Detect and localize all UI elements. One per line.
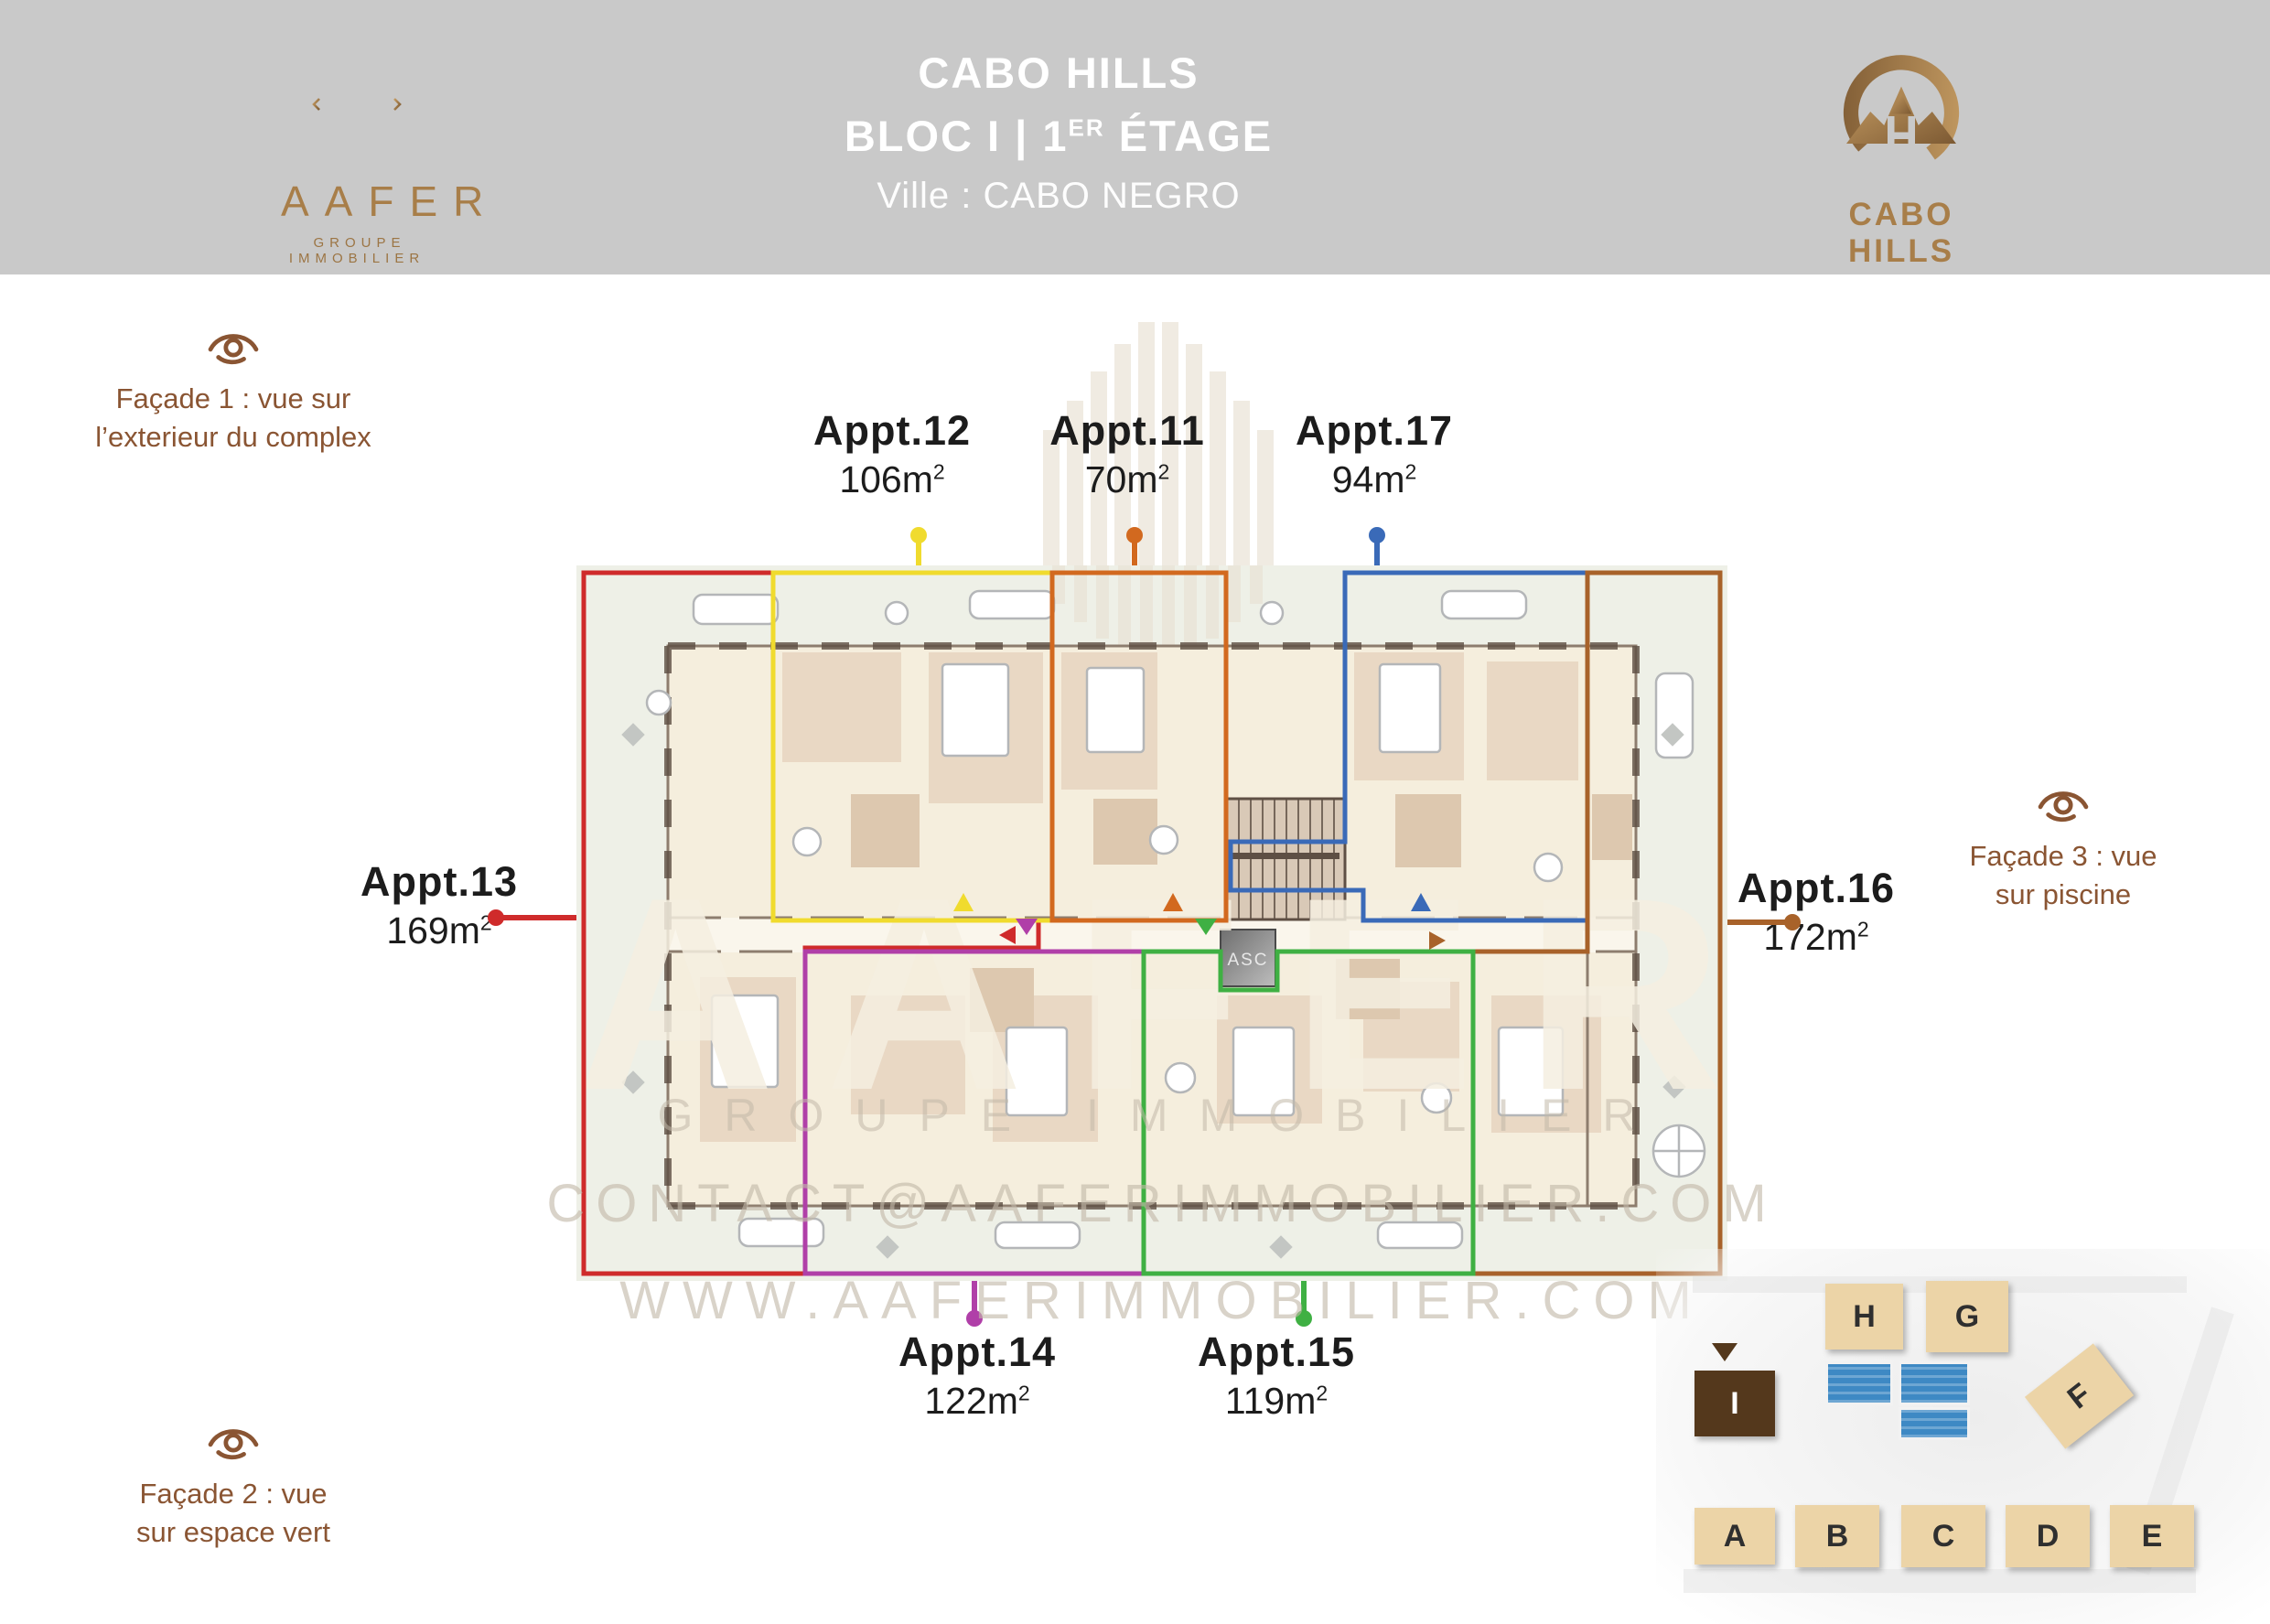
appt-14-name: Appt.14 <box>840 1328 1114 1376</box>
appt-11-arrow-icon <box>1163 893 1183 911</box>
site-block-i-marker-icon <box>1712 1343 1737 1361</box>
aafer-diamond-icon <box>307 46 407 163</box>
appt-17-pin-dot <box>1369 527 1385 543</box>
facade-2-note: Façade 2 : vue sur espace vert <box>69 1420 398 1552</box>
site-block-h: H <box>1825 1284 1903 1350</box>
cabo-hills-logo: CABO HILLS <box>1801 48 2002 270</box>
appt-12-name: Appt.12 <box>782 407 1002 455</box>
label-appt-13: Appt.13 169m2 <box>302 858 576 952</box>
appt-15-arrow-icon <box>1195 919 1217 935</box>
eye-icon <box>205 1420 262 1462</box>
city-subtitle: Ville : CABO NEGRO <box>784 176 1333 217</box>
appt-12-arrow-icon <box>953 893 974 911</box>
appt-13-arrow-icon <box>999 926 1016 944</box>
page: AAFER GROUPE IMMOBILIER CABO HILLS BLOC … <box>0 0 2270 1624</box>
appt-12-outline <box>773 573 1052 920</box>
site-road <box>1684 1569 2196 1593</box>
project-title: CABO HILLS <box>784 48 1333 98</box>
appt-16-pin <box>1726 920 1791 925</box>
appt-16-outline <box>1473 573 1720 1274</box>
appt-14-pin-dot <box>966 1310 983 1327</box>
facade-1-line2: l’exterieur du complex <box>69 418 398 457</box>
pool <box>1825 1361 1893 1405</box>
appt-13-pin-dot <box>488 909 504 926</box>
eye-icon <box>2035 782 2092 824</box>
appt-17-outline <box>1231 573 1587 920</box>
site-block-c: C <box>1901 1505 1985 1567</box>
appt-11-outline <box>1052 573 1226 920</box>
floor-plan: ASC AAFER <box>576 565 1727 1281</box>
cabo-hills-emblem-icon <box>1833 48 1970 185</box>
label-appt-14: Appt.14 122m2 <box>840 1328 1114 1423</box>
site-block-g: G <box>1926 1281 2008 1352</box>
appt-16-pin-dot <box>1784 914 1801 930</box>
page-title-block: CABO HILLS BLOC I | 1ER ÉTAGE Ville : CA… <box>784 48 1333 217</box>
site-key-map: H G F I A B C D E <box>1656 1249 2270 1624</box>
appt-12-pin-dot <box>910 527 927 543</box>
appt-12-area: 106m2 <box>782 458 1002 501</box>
appt-14-arrow-icon <box>1016 919 1038 935</box>
appt-15-name: Appt.15 <box>1139 1328 1414 1376</box>
site-block-e: E <box>2110 1505 2194 1567</box>
appt-15-outline <box>1144 952 1473 1274</box>
facade-2-line1: Façade 2 : vue <box>69 1475 398 1513</box>
appt-14-area: 122m2 <box>840 1380 1114 1423</box>
label-appt-11: Appt.11 70m2 <box>1017 407 1237 501</box>
aafer-logo-text: AAFER <box>265 177 448 226</box>
appt-17-area: 94m2 <box>1264 458 1484 501</box>
site-block-i-highlighted: I <box>1694 1371 1775 1436</box>
eye-icon <box>205 325 262 367</box>
facade-1-line1: Façade 1 : vue sur <box>69 380 398 418</box>
appt-11-area: 70m2 <box>1017 458 1237 501</box>
facade-2-line2: sur espace vert <box>69 1513 398 1552</box>
cabo-hills-logo-text: CABO HILLS <box>1801 197 2002 270</box>
appt-15-area: 119m2 <box>1139 1380 1414 1423</box>
facade-1-note: Façade 1 : vue sur l’exterieur du comple… <box>69 325 398 457</box>
bloc-floor-title: BLOC I | 1ER ÉTAGE <box>784 111 1333 161</box>
aafer-logo-tagline: GROUPE IMMOBILIER <box>265 235 448 266</box>
appt-11-name: Appt.11 <box>1017 407 1237 455</box>
site-block-d: D <box>2006 1505 2090 1567</box>
site-block-b: B <box>1795 1505 1879 1567</box>
site-block-f: F <box>2025 1343 2134 1448</box>
appt-11-pin-dot <box>1126 527 1143 543</box>
floor-plan-overlay <box>576 565 1727 1281</box>
appt-13-outline <box>584 573 1038 1274</box>
aafer-logo: AAFER GROUPE IMMOBILIER <box>265 46 448 266</box>
appt-17-arrow-icon <box>1411 893 1431 911</box>
label-appt-15: Appt.15 119m2 <box>1139 1328 1414 1423</box>
site-block-a: A <box>1694 1508 1775 1565</box>
pool <box>1899 1361 1970 1405</box>
label-appt-12: Appt.12 106m2 <box>782 407 1002 501</box>
pool <box>1899 1407 1970 1440</box>
appt-14-outline <box>805 952 1144 1274</box>
label-appt-17: Appt.17 94m2 <box>1264 407 1484 501</box>
appt-13-pin <box>499 915 586 920</box>
appt-13-name: Appt.13 <box>302 858 576 906</box>
appt-16-arrow-icon <box>1429 931 1446 950</box>
appt-17-name: Appt.17 <box>1264 407 1484 455</box>
appt-15-pin-dot <box>1296 1310 1312 1327</box>
